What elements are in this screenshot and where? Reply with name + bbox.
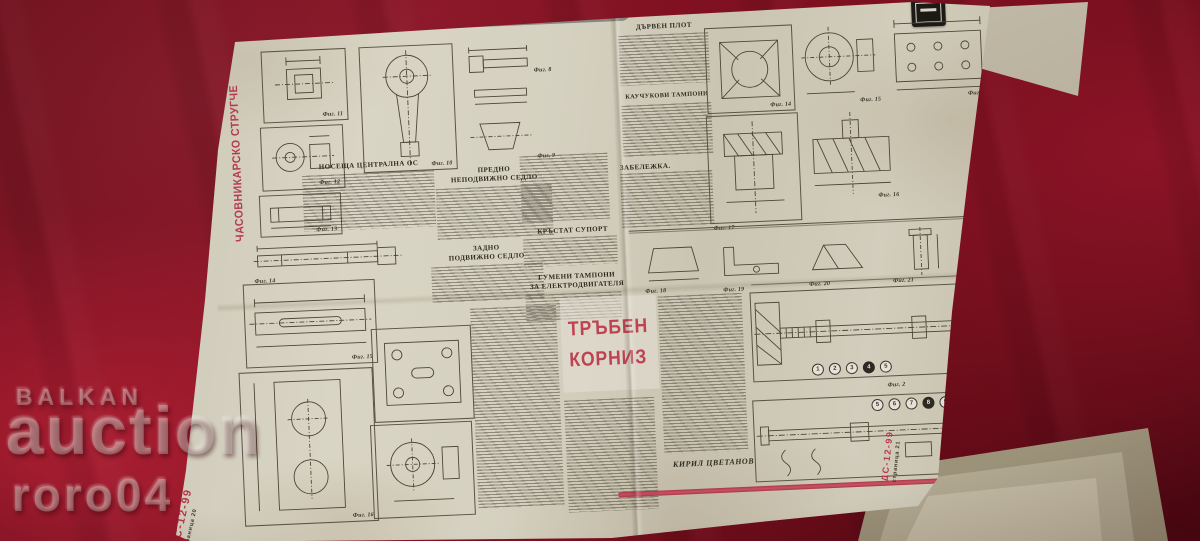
body-text	[618, 32, 710, 86]
section-heading: КАУЧУКОВИ ТАМПОНИ	[619, 90, 715, 101]
body-text	[302, 170, 436, 232]
figure-box-plate	[371, 325, 475, 423]
figure-tampon: Фиг. 17	[706, 112, 803, 224]
article-column	[658, 293, 749, 455]
figure-parts-column: Фиг. 8 Фиг. 9	[455, 43, 558, 169]
figure-label: Фиг. 2	[888, 382, 906, 389]
watermark-roro04: roro04	[12, 468, 173, 522]
figure-label: Фиг. 10	[431, 160, 452, 167]
figure-box-11: Фиг. 11	[261, 48, 349, 124]
article-title-block: ТРЪБЕН КОРНИЗ	[560, 295, 660, 393]
body-text	[621, 102, 713, 158]
figure-18: Фиг. 18	[639, 236, 707, 287]
figure-label: Фиг. 8	[534, 67, 552, 74]
figure-20: Фиг. 20	[801, 235, 873, 280]
section-heading: ДЪРВЕН ПЛОТ	[621, 20, 707, 32]
figure-label: Фиг. 16	[878, 192, 899, 199]
figure-label: Фиг. 16	[353, 512, 374, 519]
figure-hatched-block: Фиг. 16	[802, 106, 902, 204]
figure-box-15: Фиг. 15	[243, 279, 379, 369]
body-text	[519, 153, 610, 223]
callout: 7	[905, 397, 918, 410]
figure-label: Фиг. 15	[860, 97, 881, 104]
figure-label: Фиг. 11	[323, 111, 344, 118]
callout: 5	[880, 360, 893, 373]
figure-shaft-14: Фиг. 14	[251, 238, 404, 279]
figure-box-bearing: Фиг. 14	[704, 24, 796, 114]
auction-photo: Домашни професионални вести ЧАСОВНИКАРСК…	[0, 0, 1200, 541]
figure-flange: Фиг. 15	[794, 15, 884, 107]
callout: 1	[812, 363, 825, 376]
callout: 4	[863, 361, 876, 374]
figure-21: Фиг. 21	[887, 224, 955, 279]
figure-label: Фиг. 14	[770, 102, 791, 109]
figure-box-2: 5 6 7 8 9	[752, 391, 971, 482]
figure-plate-top-right: Фиг. 13	[883, 10, 993, 101]
left-page-vertical-title: ЧАСОВНИКАРСКО СТРУГЧЕ	[223, 81, 252, 246]
watermark-auction: auction	[6, 392, 262, 470]
figure-box-disc	[370, 421, 476, 519]
body-text	[620, 170, 714, 228]
callout: 8	[922, 397, 935, 410]
callout: 2	[829, 363, 842, 376]
callout: 5	[871, 399, 884, 412]
figure-label: Фиг. 15	[352, 354, 373, 361]
body-text-column	[470, 305, 565, 509]
callout: 3	[846, 362, 859, 375]
figure-box-10: Фиг. 10	[358, 43, 457, 173]
